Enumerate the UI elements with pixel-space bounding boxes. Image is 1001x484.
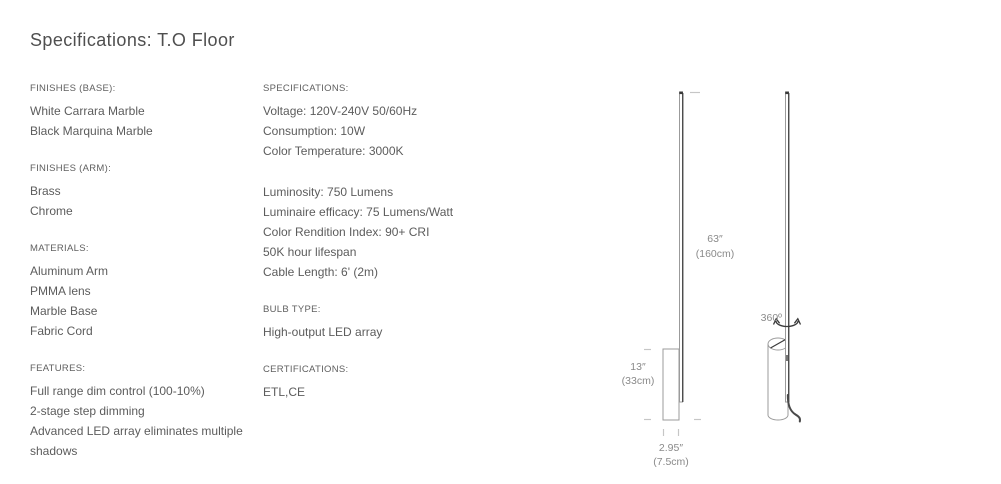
lamp-pole-front [680,92,683,402]
height-label-cm: (160cm) [696,248,735,260]
spec-line: Aluminum Arm [30,261,252,281]
section-heading: FINISHES (ARM): [30,162,252,175]
page-title: Specifications: T.O Floor [30,30,235,51]
lamp-side-view [768,92,801,422]
section-bulb-type: BULB TYPE: High-output LED array [263,303,525,342]
spec-line: Marble Base [30,301,252,321]
base-height-label-cm: (33cm) [622,375,655,387]
section-heading: MATERIALS: [30,242,252,255]
power-cord [788,395,800,422]
base-width-label-cm: (7.5cm) [653,456,689,468]
spec-line: 2-stage step dimming [30,401,252,421]
lamp-pole-side-cap [785,92,789,95]
lamp-front-view [663,92,683,421]
spec-line: Fabric Cord [30,321,252,341]
section-heading: FINISHES (BASE): [30,82,252,95]
base-width-label-inches: 2.95″ [659,442,683,454]
section-certifications: CERTIFICATIONS: ETL,CE [263,363,525,402]
spec-line: White Carrara Marble [30,101,252,121]
section-heading: BULB TYPE: [263,303,525,316]
spec-line: Luminaire efficacy: 75 Lumens/Watt [263,202,525,222]
spec-line: PMMA lens [30,281,252,301]
spec-line: 50K hour lifespan [263,242,525,262]
lamp-pole-cap [679,92,683,95]
spec-line: Consumption: 10W [263,121,525,141]
spec-line: High-output LED array [263,322,525,342]
dimension-diagram: 63″ (160cm) 13″ (33cm) 2.95″ (7.5cm) [610,85,840,480]
specifications-column: SPECIFICATIONS: Voltage: 120V-240V 50/60… [263,82,525,423]
spec-line: Black Marquina Marble [30,121,252,141]
spec-sheet-page: Specifications: T.O Floor FINISHES (BASE… [0,0,1001,484]
section-heading: SPECIFICATIONS: [263,82,525,95]
spec-line: Brass [30,181,252,201]
section-specifications: SPECIFICATIONS: Voltage: 120V-240V 50/60… [263,82,525,161]
section-materials: MATERIALS: Aluminum Arm PMMA lens Marble… [30,242,252,341]
spec-line: Cable Length: 6' (2m) [263,262,525,282]
spec-line: Voltage: 120V-240V 50/60Hz [263,101,525,121]
section-finishes-base: FINISHES (BASE): White Carrara Marble Bl… [30,82,252,141]
finishes-materials-column: FINISHES (BASE): White Carrara Marble Bl… [30,82,252,482]
base-height-label-inches: 13″ [630,361,646,373]
rotation-label: 360º [761,312,783,324]
spec-line: Advanced LED array eliminates multiple s… [30,421,252,461]
spec-line: Full range dim control (100-10%) [30,381,252,401]
section-light-output: Luminosity: 750 Lumens Luminaire efficac… [263,182,525,282]
spec-line: Luminosity: 750 Lumens [263,182,525,202]
spec-line: Color Rendition Index: 90+ CRI [263,222,525,242]
section-finishes-arm: FINISHES (ARM): Brass Chrome [30,162,252,221]
lamp-line-drawing: 63″ (160cm) 13″ (33cm) 2.95″ (7.5cm) [610,85,840,480]
lamp-base-front [663,349,679,420]
spec-line: Color Temperature: 3000K [263,141,525,161]
height-label-inches: 63″ [707,233,723,245]
section-heading: CERTIFICATIONS: [263,363,525,376]
spec-line: ETL,CE [263,382,525,402]
section-heading: FEATURES: [30,362,252,375]
section-features: FEATURES: Full range dim control (100-10… [30,362,252,461]
spec-line: Chrome [30,201,252,221]
